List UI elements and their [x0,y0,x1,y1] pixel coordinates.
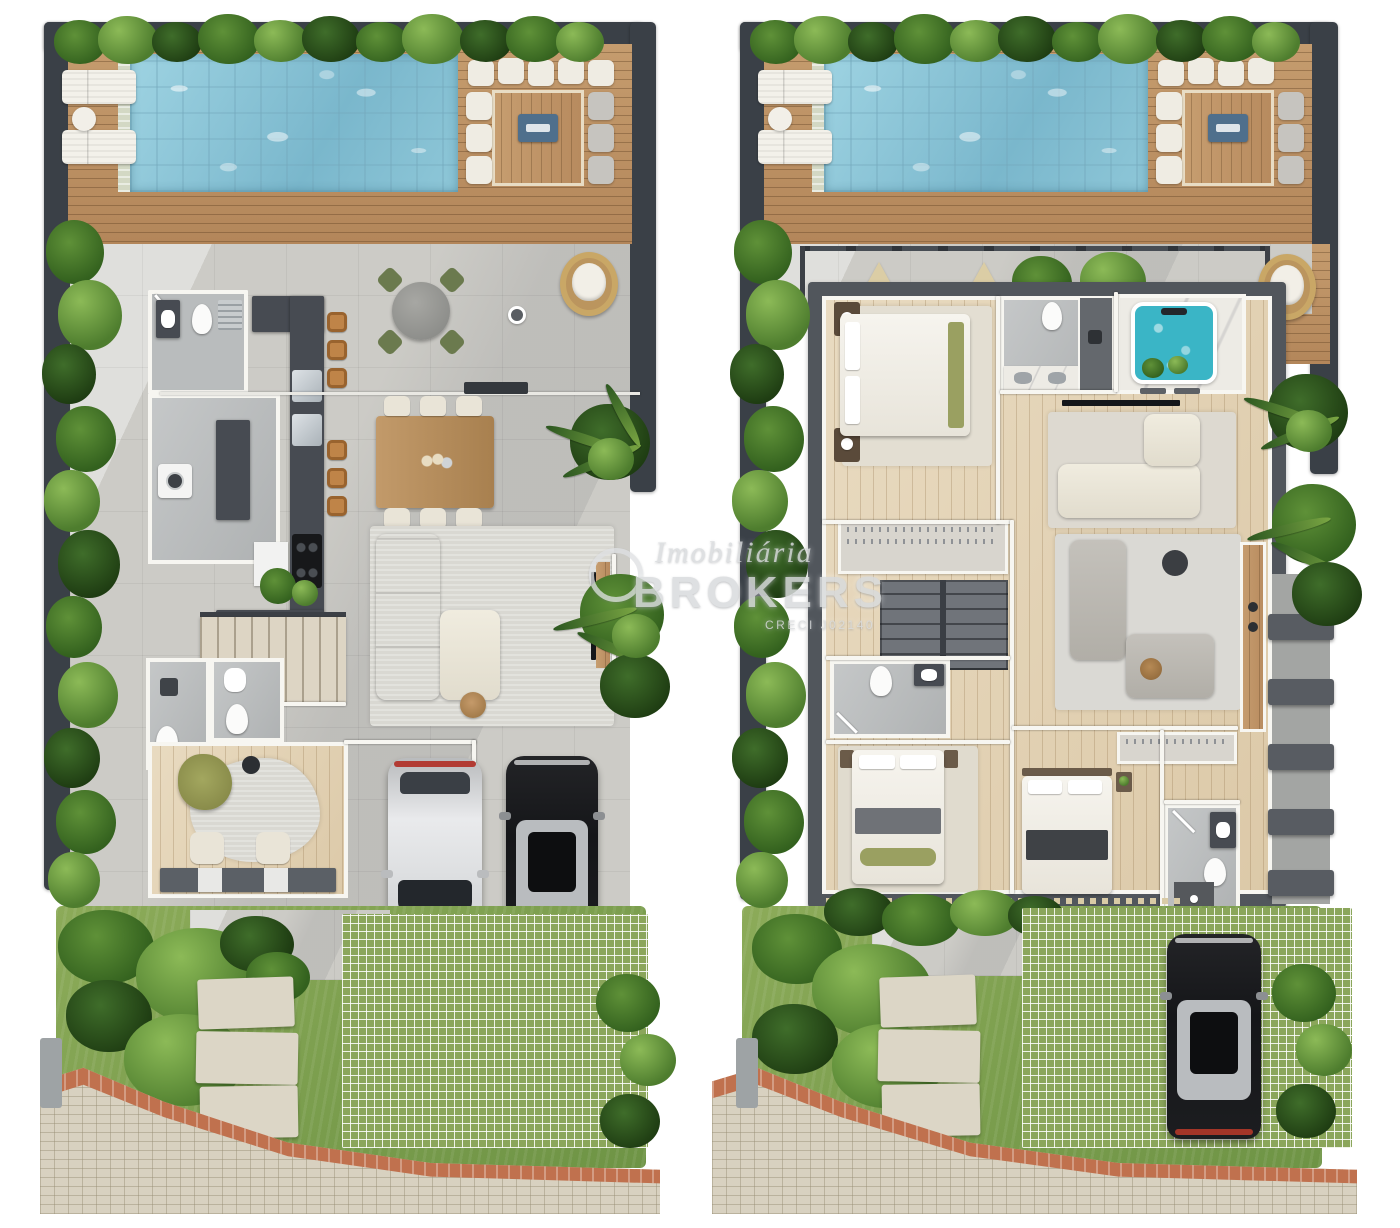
shower-head [160,678,178,696]
palm-cluster [588,438,634,480]
egg-chair-cushion [572,263,606,301]
hedge-foliage [198,14,260,64]
bar-stool [327,312,347,332]
wall-segment [1114,292,1118,392]
toilet [226,704,248,734]
toilet [870,666,892,696]
hedge-foliage [998,16,1056,62]
lamp [841,438,853,450]
bed [1022,776,1112,894]
bar-stool [327,340,347,360]
sofa-cushion [1278,92,1304,120]
hedge-foliage [98,16,158,64]
hedge-foliage [950,20,1004,62]
nightstand [944,750,958,768]
stepping-stone [879,974,977,1027]
sofa-cushion [588,60,614,86]
sun-lounger [758,130,832,164]
dining-chair [456,508,482,528]
sofa-cushion [588,156,614,184]
sofa-white-chaise [1144,414,1200,466]
bath-mat [1174,388,1200,394]
dining-chair [384,508,410,528]
car-mirror [1256,992,1268,1000]
side-garden-foliage [56,406,116,472]
vanity-counter [1210,812,1236,848]
shower-stall [1078,296,1114,394]
side-garden-foliage [56,790,116,854]
wall-segment [826,740,1010,744]
sofa-cushion [1278,124,1304,152]
car-rear-window [400,772,470,794]
dining-chair [456,396,482,416]
hedge-foliage [894,14,956,64]
sectional-sofa [376,534,440,700]
side-garden-foliage [732,728,788,788]
palm-bush [1296,1024,1352,1076]
desk-chair [256,832,290,864]
kitchen-sink [292,370,322,402]
hedge-foliage [1156,20,1208,62]
bed [852,750,944,884]
car-headlight-strip [1175,938,1253,943]
wall-segment [1012,726,1238,730]
swimming-pool [130,54,458,192]
floor-plan-render: { "watermark": { "script": "Imobiliária"… [0,0,1400,1228]
shower-drain [1190,895,1198,903]
sun-lounger [62,130,136,164]
sofa-cushion [1156,156,1182,184]
side-garden-foliage [746,280,810,350]
side-garden-foliage [48,852,100,908]
wall-segment [1164,800,1240,804]
pergola-beam [1268,679,1334,705]
lounge-table-top [1216,124,1240,132]
potted-plant [292,580,318,606]
pillow [845,322,860,370]
jacuzzi-headrest [1161,308,1187,315]
bed-throw [1026,830,1108,860]
pergola-beam [1268,870,1334,896]
car-sunroof [1190,1012,1238,1074]
side-garden-foliage [734,596,790,658]
sofa-cushion [466,124,492,152]
bathroom-room [210,658,284,742]
floor-drain [508,306,526,324]
wall-segment [1000,390,1116,394]
bath-mat [1140,388,1166,394]
sofa-cushion [1156,92,1182,120]
potted-plant [260,568,296,604]
plant-mini [1119,776,1129,786]
coffee-table [1140,658,1162,680]
sink-basin [921,669,937,681]
side-garden-foliage [744,790,804,854]
palm-cluster [600,654,670,718]
side-garden-foliage [732,470,788,532]
hedge-foliage [556,22,604,62]
side-garden-foliage [746,662,806,728]
hedge-foliage [1098,14,1160,64]
bed-throw [948,322,964,428]
sun-lounger [758,70,832,104]
side-garden-foliage [746,530,808,598]
wall-sideboard [464,382,528,394]
potted-plant [1168,356,1188,374]
hedge-foliage [794,16,854,64]
garden-bush [752,1004,838,1074]
kitchen-sink [292,414,322,446]
car-mirror [593,812,605,820]
pillow [1068,780,1102,794]
sink-basin [224,668,246,692]
pillow [1028,780,1062,794]
side-table [72,107,96,131]
hedge-foliage [460,20,512,62]
headboard [1022,768,1112,776]
shelf-rack [218,300,242,330]
bed-bolster [860,848,936,866]
tv-screen [1062,400,1180,406]
floor-plan-upper [712,14,1357,1214]
car-mirror [1160,992,1172,1000]
table-centerpiece [418,452,454,470]
sink-basin [1216,822,1230,838]
side-garden-foliage [42,344,96,404]
sofa-cushion [1278,156,1304,184]
sofa-cushion [1218,60,1244,86]
palm-bush [620,1034,676,1086]
palm-bush [1272,964,1336,1022]
vanity-double [1004,366,1080,390]
car-mirror [499,812,511,820]
wall-segment [826,656,1010,660]
side-garden-foliage [46,220,104,284]
side-table-dark [242,756,260,774]
bar-stool [327,468,347,488]
side-garden-foliage [44,470,100,532]
side-garden-foliage [736,852,788,908]
hedge-foliage [1052,22,1104,62]
office-armchair [178,754,232,810]
retaining-wall [40,1038,62,1108]
nightstand [1116,772,1132,792]
dining-chair [420,396,446,416]
palm-bush [600,1094,660,1148]
glass-wall [160,392,640,395]
palm-bush [596,974,660,1032]
side-garden-foliage [734,220,792,284]
car-mirror [381,870,393,878]
hedge-foliage [152,22,202,62]
car-black [1167,934,1261,1139]
swimming-pool [824,54,1148,192]
bar-stool [327,368,347,388]
side-garden-foliage [46,596,102,658]
toilet [1042,302,1062,330]
car-headlight-strip [514,760,590,765]
palm-cluster [1292,562,1362,626]
hanger-row [847,527,999,532]
retaining-wall [736,1038,758,1108]
sofa-cushion [528,60,554,86]
office-desk [160,868,336,892]
sofa-cushion [466,156,492,184]
pergola-beam [1268,744,1334,770]
hedge-bush [882,894,960,946]
wall-segment [996,296,1000,524]
pillow [900,755,936,769]
vanity-counter [156,300,180,338]
lounge-table [518,114,558,142]
wall-segment [1010,520,1014,894]
desk-chair [190,832,224,864]
ottoman [1162,550,1188,576]
wall-segment [1160,730,1164,922]
sofa-chaise [440,610,500,700]
sofa-cushion [468,60,494,86]
side-garden-foliage [58,280,122,350]
washer-door [166,472,184,490]
hedge-foliage [848,22,898,62]
lounge-table-top [526,124,550,132]
wardrobe [1117,732,1237,764]
hedge-foliage [356,22,408,62]
sofa-cushion [1248,58,1274,84]
wall-segment [822,520,1012,524]
car-taillight-strip [1175,1129,1253,1135]
hanger-row [847,539,999,544]
sideboard [1240,542,1266,732]
bar-stool [327,440,347,460]
hedge-foliage [1252,22,1300,62]
vanity-counter [914,664,944,686]
hanger-row [1126,739,1228,744]
sofa-cushion [466,92,492,120]
wall-segment [344,740,476,744]
decor-object [1248,602,1258,612]
stepping-stone [197,976,295,1029]
palm-bush [1276,1084,1336,1138]
stepping-stone [878,1029,981,1083]
side-table [768,107,792,131]
sofa-cushion [1188,58,1214,84]
sofa-cushion [498,58,524,84]
washing-machine [158,464,192,498]
bed-throw [855,808,941,834]
laundry-cabinet [216,420,250,520]
sofa-cushion [1158,60,1184,86]
hedge-foliage [302,16,360,62]
hedge-foliage [402,14,464,64]
hedge-foliage [254,20,308,62]
sink-basin [1014,372,1032,384]
palm-cluster [1286,410,1332,452]
potted-plant [1142,358,1164,378]
wardrobe [838,520,1008,574]
outdoor-round-table [392,282,450,340]
side-garden-foliage [58,530,120,598]
side-garden-foliage [44,728,100,788]
parapet-rail [800,246,1270,251]
coffee-tray [460,692,486,718]
pillow [845,376,860,424]
shower-head [1088,330,1102,344]
toilet [192,304,212,334]
stepping-stone [196,1031,299,1085]
hanging-egg-chair [560,252,618,316]
floor-plan-ground [40,14,660,1214]
car-sunroof [528,832,576,892]
dining-chair [384,396,410,416]
decor-object [1248,622,1258,632]
sofa-cushion [588,92,614,120]
sun-lounger [62,70,136,104]
sofa-cushion [1156,124,1182,152]
dining-table [376,416,494,508]
master-bed [840,314,970,436]
bar-stool [327,496,347,516]
lounge-table [1208,114,1248,142]
dining-chair [420,508,446,528]
car-taillight-strip [394,761,476,767]
side-garden-foliage [744,406,804,472]
palm-cluster [612,614,660,658]
side-garden-foliage [730,344,784,404]
side-garden-foliage [58,662,118,728]
sink-basin [1048,372,1066,384]
pillow [859,755,895,769]
sofa-white [1058,464,1200,518]
car-mirror [477,870,489,878]
sofa-cushion [588,124,614,152]
sectional-sofa-gray [1070,540,1126,660]
sink-basin [161,310,175,328]
pergola-beam [1268,809,1334,835]
